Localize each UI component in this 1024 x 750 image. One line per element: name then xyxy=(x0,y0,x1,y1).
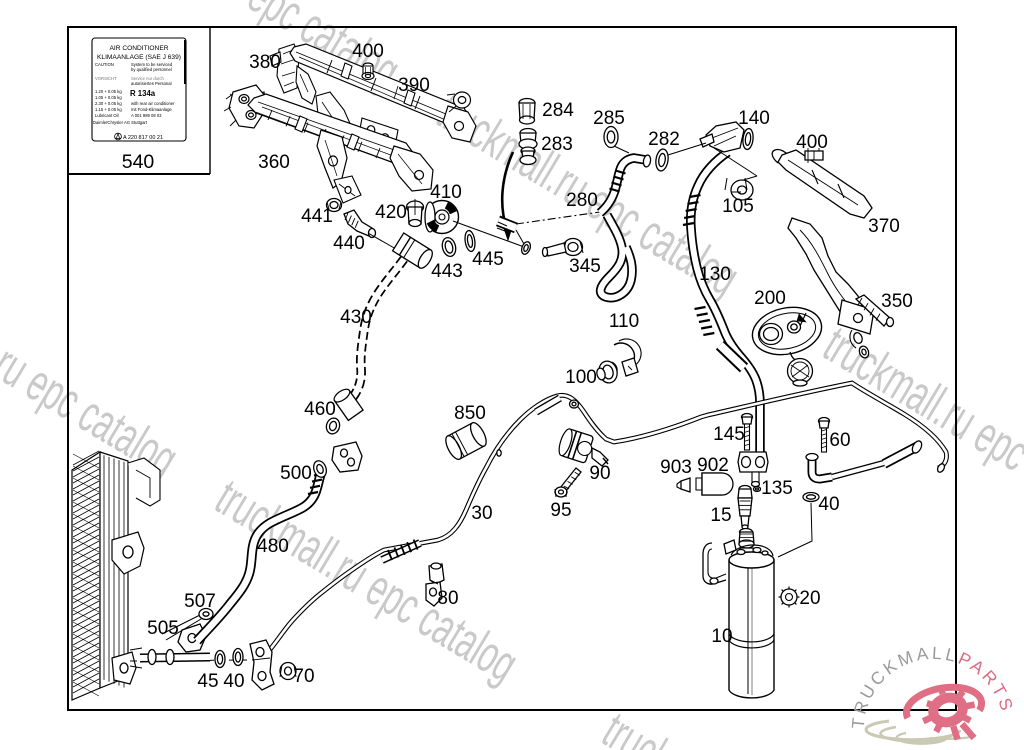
svg-text:390: 390 xyxy=(398,75,430,96)
svg-text:30: 30 xyxy=(471,503,492,524)
svg-text:130: 130 xyxy=(699,264,731,285)
svg-text:AIR CONDITIONER: AIR CONDITIONER xyxy=(110,45,169,52)
svg-text:15: 15 xyxy=(710,505,731,526)
svg-text:A 001 989 08 03: A 001 989 08 03 xyxy=(131,113,162,118)
svg-text:R 134a: R 134a xyxy=(130,89,156,98)
svg-text:20: 20 xyxy=(799,588,820,609)
svg-text:45: 45 xyxy=(197,671,218,692)
svg-text:140: 140 xyxy=(738,108,770,129)
svg-text:mit Fond-Klimaanlage: mit Fond-Klimaanlage xyxy=(131,107,172,112)
svg-text:505: 505 xyxy=(147,618,179,639)
svg-text:1.05 + 0.05 kg: 1.05 + 0.05 kg xyxy=(95,95,122,100)
svg-text:410: 410 xyxy=(430,182,462,203)
svg-text:345: 345 xyxy=(569,256,601,277)
svg-text:40: 40 xyxy=(818,494,839,515)
svg-text:1.20 + 0.05 kg: 1.20 + 0.05 kg xyxy=(95,89,122,94)
svg-text:80: 80 xyxy=(437,588,458,609)
svg-text:10: 10 xyxy=(711,626,732,647)
svg-text:60: 60 xyxy=(829,430,850,451)
svg-text:400: 400 xyxy=(796,132,828,153)
svg-text:380: 380 xyxy=(249,52,281,73)
svg-text:VORSICHT: VORSICHT xyxy=(95,76,117,81)
svg-text:100: 100 xyxy=(565,367,597,388)
svg-text:70: 70 xyxy=(293,666,314,687)
svg-text:445: 445 xyxy=(472,249,504,270)
svg-text:540: 540 xyxy=(122,151,155,173)
svg-text:285: 285 xyxy=(593,108,625,129)
svg-text:350: 350 xyxy=(881,291,913,312)
svg-text:400: 400 xyxy=(352,41,384,62)
svg-text:110: 110 xyxy=(609,311,639,332)
svg-text:DaimlerChrysler AG Stuttgart: DaimlerChrysler AG Stuttgart xyxy=(93,120,148,125)
svg-text:440: 440 xyxy=(333,233,365,254)
svg-text:145: 145 xyxy=(713,424,745,445)
svg-text:105: 105 xyxy=(722,196,754,217)
svg-text:903: 903 xyxy=(660,457,692,478)
svg-text:441: 441 xyxy=(301,206,333,227)
svg-text:507: 507 xyxy=(184,591,216,612)
svg-text:with rear air conditioner: with rear air conditioner xyxy=(131,101,175,106)
svg-text:135: 135 xyxy=(761,478,793,499)
svg-text:360: 360 xyxy=(258,152,290,173)
svg-text:902: 902 xyxy=(697,455,729,476)
svg-text:460: 460 xyxy=(304,399,336,420)
svg-text:200: 200 xyxy=(754,288,786,309)
svg-text:KLIMAANLAGE (SAE J 639): KLIMAANLAGE (SAE J 639) xyxy=(97,54,181,61)
svg-text:420: 420 xyxy=(375,202,407,223)
svg-text:90: 90 xyxy=(589,463,610,484)
svg-text:500: 500 xyxy=(280,463,312,484)
svg-text:443: 443 xyxy=(431,261,463,282)
svg-text:284: 284 xyxy=(542,100,574,121)
svg-text:A 220 817 00 21: A 220 817 00 21 xyxy=(123,135,163,141)
svg-text:40: 40 xyxy=(223,671,244,692)
svg-text:CAUTION: CAUTION xyxy=(95,62,114,67)
svg-text:Lubricant Oil: Lubricant Oil xyxy=(95,113,119,118)
svg-text:280: 280 xyxy=(566,190,598,211)
svg-text:by qualified personnel: by qualified personnel xyxy=(131,67,172,72)
svg-text:2.30 + 0.05 kg: 2.30 + 0.05 kg xyxy=(95,101,122,106)
svg-text:95: 95 xyxy=(550,500,571,521)
svg-text:282: 282 xyxy=(648,129,680,150)
svg-text:1.15 + 0.05 kg: 1.15 + 0.05 kg xyxy=(95,107,122,112)
svg-text:430: 430 xyxy=(340,307,372,328)
svg-text:480: 480 xyxy=(257,536,289,557)
svg-text:850: 850 xyxy=(454,403,486,424)
svg-text:370: 370 xyxy=(868,216,900,237)
svg-text:autorisiertes Personal: autorisiertes Personal xyxy=(131,81,172,86)
svg-text:283: 283 xyxy=(541,134,573,155)
